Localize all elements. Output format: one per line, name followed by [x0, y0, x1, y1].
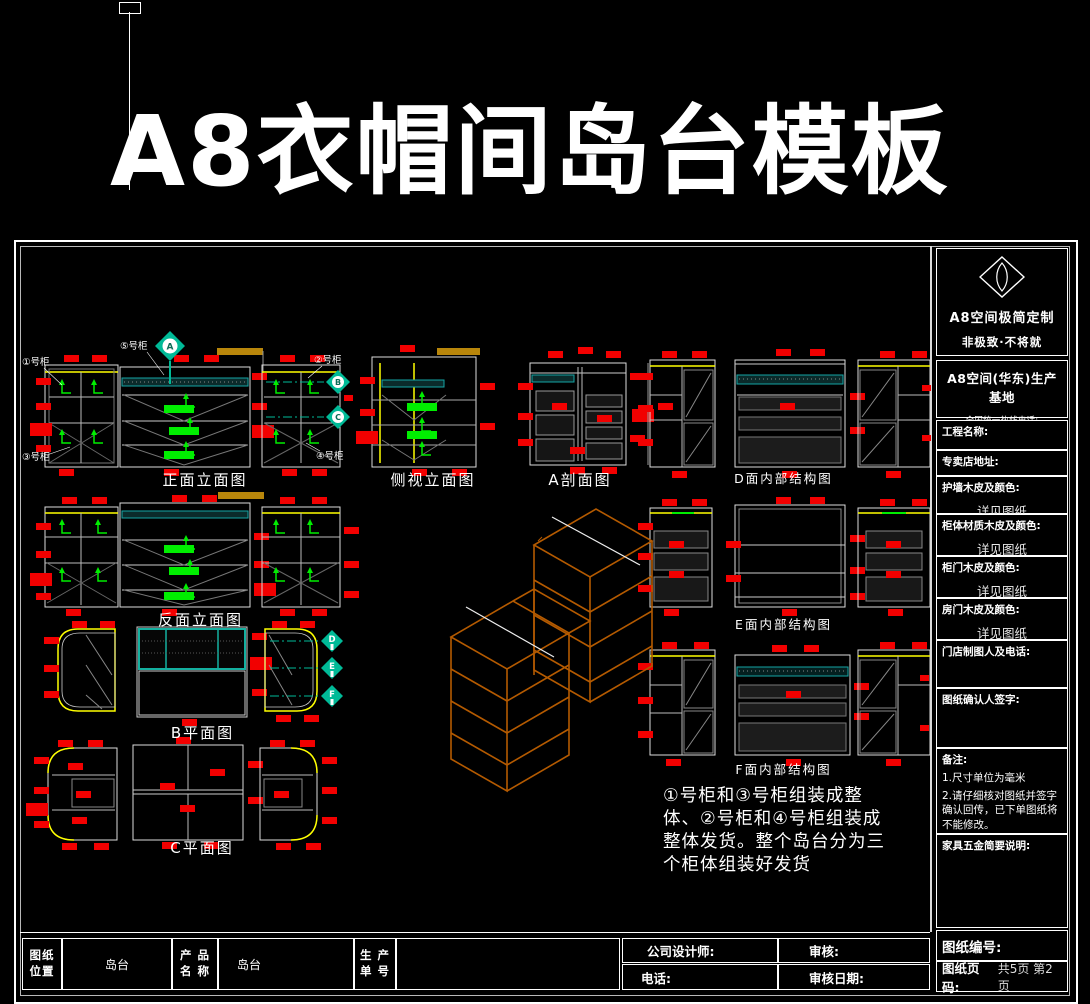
body-material-label: 柜体材质木皮及颜色: — [942, 520, 1041, 532]
caption-section-a: A剖面图 — [530, 469, 630, 490]
tb-review-date: 审核日期: — [778, 964, 930, 990]
panel-remarks: 备注: 1.尺寸单位为毫米 2.请仔细核对图纸并签字确认回传，已下单图纸将不能修… — [936, 748, 1068, 834]
label-cabinet-2: ②号柜 — [314, 354, 342, 366]
drawing-no-label: 图纸编号: — [942, 936, 1001, 956]
tb-product-value: 岛台 — [218, 938, 354, 990]
panel-store-drafter: 门店制图人及电话: — [936, 640, 1068, 688]
drawing-plan-c — [26, 737, 337, 850]
hardware-note-label: 家具五金简要说明: — [942, 840, 1030, 852]
drawing-plan-b: D E F — [44, 621, 343, 726]
brand-logo-icon — [979, 256, 1025, 298]
drawing-front-elevation: A B C ①号柜 ③号柜 ⑤号柜 ②号柜 — [22, 331, 353, 476]
section-marker-c: C — [335, 413, 341, 422]
room-door-label: 房门木皮及颜色: — [942, 604, 1020, 616]
section-marker-d: D — [328, 635, 335, 645]
label-cabinet-5: ⑤号柜 — [120, 340, 148, 352]
page-title: A8衣帽间岛台模板 — [110, 72, 930, 213]
page-no-value: 共5页 第2页 — [998, 960, 1062, 994]
tb-position-value-text: 岛台 — [105, 956, 129, 973]
drawing-isometric-view — [451, 509, 652, 791]
drawing-rear-elevation — [30, 492, 359, 616]
panel-brand: A8空间极简定制 非极致·不将就 — [936, 248, 1068, 356]
caption-plan-b: B平面图 — [150, 722, 255, 743]
tb-product-label: 产 品 名 称 — [172, 938, 218, 990]
caption-plan-c: C平面图 — [152, 837, 252, 858]
panel-door-veneer: 柜门木皮及颜色: 详见图纸 — [936, 556, 1068, 598]
assembly-note: ①号柜和③号柜组装成整体、②号柜和④号柜组装成整体发货。整个岛台分为三个柜体组装… — [663, 785, 885, 877]
wall-veneer-label: 护墙木皮及颜色: — [942, 482, 1020, 494]
caption-structure-f: F面内部结构图 — [726, 759, 841, 778]
brand-title: A8空间极简定制 — [942, 307, 1062, 326]
remark-line-2: 2.请仔细核对图纸并签字确认回传，已下单图纸将不能修改。 — [942, 789, 1062, 832]
caption-front-elevation: 正面立面图 — [150, 469, 260, 490]
drawing-side-elevation — [356, 345, 495, 476]
section-marker-a: A — [167, 343, 174, 353]
tb-review-label: 审核: — [809, 941, 839, 960]
caption-rear-elevation: 反面立面图 — [143, 609, 258, 630]
caption-structure-e: E面内部结构图 — [726, 614, 841, 633]
drawing-structure-d — [638, 349, 931, 478]
label-cabinet-3: ③号柜 — [22, 451, 50, 463]
store-drafter-label: 门店制图人及电话: — [942, 646, 1030, 658]
title-block-top-line — [20, 932, 930, 933]
panel-body-material: 柜体材质木皮及颜色: 详见图纸 — [936, 514, 1068, 556]
label-cabinet-4: ④号柜 — [316, 450, 344, 462]
tb-position-label-line2: 位置 — [30, 964, 55, 980]
remarks-label: 备注: — [942, 754, 967, 766]
tb-phone-label: 电话: — [641, 968, 671, 987]
label-cabinet-1: ①号柜 — [22, 356, 50, 368]
panel-project-name: 工程名称: — [936, 420, 1068, 450]
project-name-label: 工程名称: — [942, 426, 988, 438]
tb-product-value-text: 岛台 — [237, 956, 261, 973]
panel-hardware-note: 家具五金简要说明: — [936, 834, 1068, 928]
tb-product-label-line1: 产 品 — [180, 948, 210, 964]
confirm-sign-label: 图纸确认人签字: — [942, 694, 1020, 706]
remark-line-1: 1.尺寸单位为毫米 — [942, 771, 1062, 785]
crosshair-marker — [119, 2, 141, 14]
panel-room-door: 房门木皮及颜色: 详见图纸 — [936, 598, 1068, 640]
panel-drawing-no: 图纸编号: — [936, 930, 1068, 961]
drawing-section-a — [518, 347, 654, 474]
tb-order-label-line1: 生 产 — [360, 948, 390, 964]
page-no-label: 图纸页码: — [942, 958, 995, 996]
tb-order-label: 生 产 单 号 — [354, 938, 396, 990]
tb-position-value: 岛台 — [62, 938, 172, 990]
tb-review: 审核: — [778, 938, 930, 963]
panel-wall-veneer: 护墙木皮及颜色: 详见图纸 — [936, 476, 1068, 514]
store-address-label: 专卖店地址: — [942, 456, 999, 468]
tb-product-label-line2: 名 称 — [180, 964, 210, 980]
section-marker-b: B — [335, 378, 341, 387]
door-veneer-label: 柜门木皮及颜色: — [942, 562, 1020, 574]
section-marker-e: E — [329, 662, 335, 672]
tb-position-label: 图纸 位置 — [22, 938, 62, 990]
caption-structure-d: D面内部结构图 — [726, 468, 841, 487]
panel-base: A8空间(华东)生产基地 全国统一热线电话: 4000078678 — [936, 360, 1068, 418]
tb-order-value — [396, 938, 620, 990]
tb-review-date-label: 审核日期: — [809, 968, 864, 987]
tb-phone: 电话: — [622, 964, 778, 990]
section-marker-f: F — [329, 690, 335, 700]
base-title: A8空间(华东)生产基地 — [942, 368, 1062, 406]
caption-side-elevation: 侧视立面图 — [383, 469, 483, 490]
panel-page-no: 图纸页码: 共5页 第2页 — [936, 961, 1068, 992]
tb-designer: 公司设计师: — [622, 938, 778, 963]
tb-order-label-line2: 单 号 — [360, 964, 390, 980]
panel-store-address: 专卖店地址: — [936, 450, 1068, 476]
drawing-structure-e — [638, 497, 930, 616]
drawing-structure-f — [638, 642, 930, 766]
tb-designer-label: 公司设计师: — [647, 941, 715, 960]
panel-confirm-sign: 图纸确认人签字: — [936, 688, 1068, 748]
brand-slogan: 非极致·不将就 — [942, 334, 1062, 350]
tb-position-label-line1: 图纸 — [30, 948, 55, 964]
